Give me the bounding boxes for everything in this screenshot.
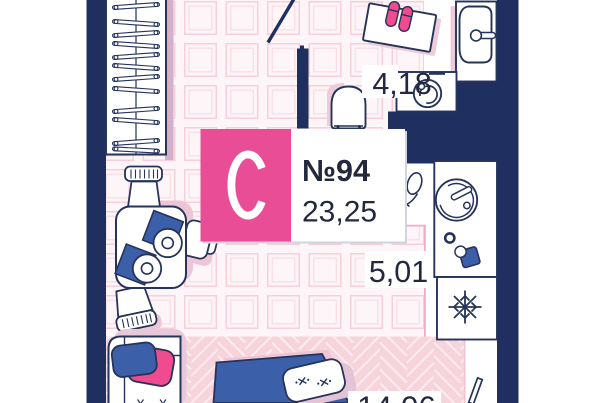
svg-text:23,25: 23,25 [302, 196, 377, 229]
svg-text:5,01: 5,01 [369, 255, 428, 289]
svg-text:№94: №94 [302, 154, 370, 188]
svg-text:14,06: 14,06 [357, 389, 436, 403]
svg-text:4,18: 4,18 [372, 67, 431, 101]
